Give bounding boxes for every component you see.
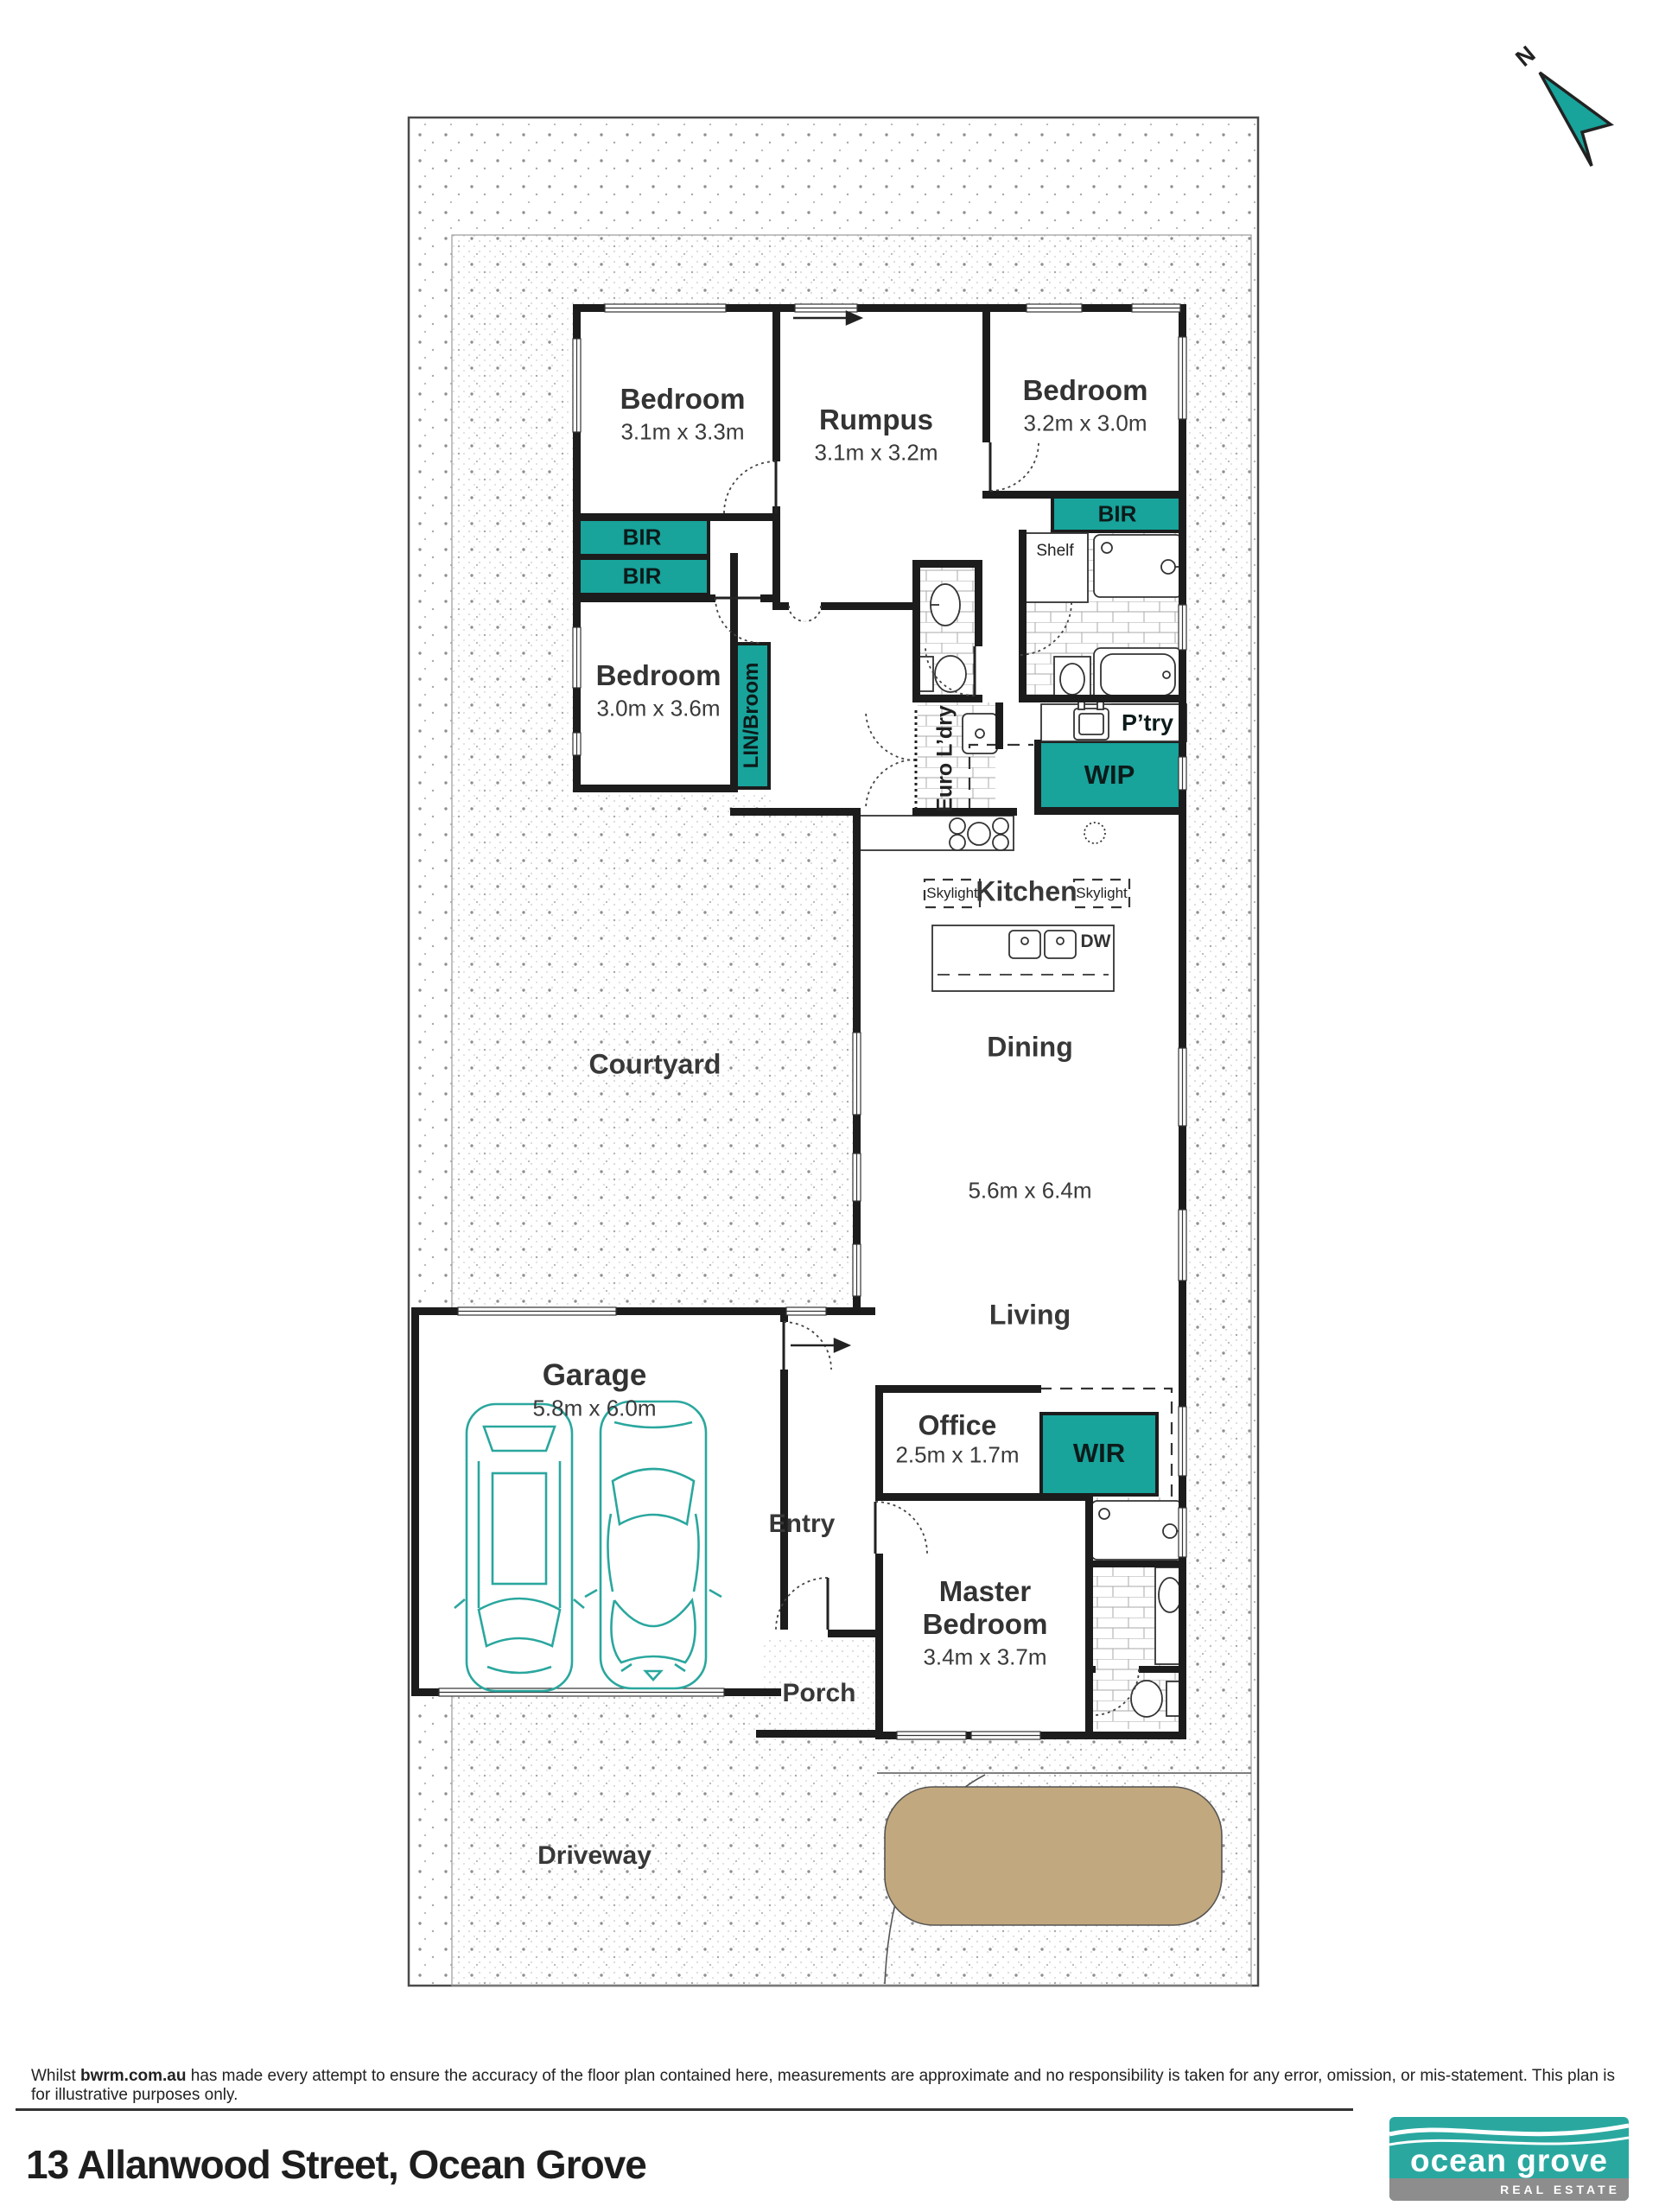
wall-segment	[975, 560, 982, 646]
master-label-line1: Master	[939, 1575, 1031, 1608]
shelf-label: Shelf	[1036, 542, 1073, 561]
north-arrow-icon	[1540, 73, 1611, 166]
open-plan-dims: 5.6m x 6.4m	[968, 1178, 1091, 1205]
wall-segment	[912, 695, 982, 702]
window	[605, 304, 726, 312]
bir2-label: BIR	[623, 563, 662, 590]
wall-segment	[821, 602, 920, 610]
office-label: Office	[918, 1410, 997, 1442]
appliance-icon	[1084, 823, 1105, 843]
footer-divider	[16, 2108, 1353, 2111]
wall-segment	[828, 1630, 877, 1637]
wall-segment	[875, 1554, 883, 1739]
agency-logo: ocean grove REAL ESTATE	[1389, 2117, 1629, 2201]
wall-segment	[573, 513, 780, 521]
kitchen-label: Kitchen	[976, 876, 1077, 908]
wall-segment	[1085, 1497, 1093, 1739]
window	[1179, 605, 1186, 650]
window	[853, 1244, 861, 1296]
garage-dims: 5.8m x 6.0m	[532, 1395, 656, 1422]
wall-segment	[912, 560, 982, 568]
wall-segment	[982, 491, 1186, 499]
office-dims: 2.5m x 1.7m	[895, 1442, 1019, 1469]
wall-segment	[756, 1730, 877, 1738]
wall-segment	[995, 702, 1003, 749]
wall-segment	[730, 808, 861, 816]
wall-segment	[1085, 1666, 1096, 1673]
wall-segment	[1139, 1666, 1186, 1673]
wall-segment	[724, 1688, 781, 1696]
wall-segment	[1034, 1493, 1093, 1501]
window	[1179, 1048, 1186, 1126]
disclaimer-site: bwrm.com.au	[80, 2067, 186, 2085]
logo-tagline: REAL ESTATE	[1500, 2183, 1620, 2196]
skylight1-label: Skylight	[926, 885, 978, 902]
bir1-label: BIR	[623, 524, 662, 551]
wip-label: WIP	[1084, 760, 1135, 791]
floorplan-drawing	[0, 0, 1659, 2212]
window	[1027, 304, 1082, 312]
wall-segment	[780, 1370, 788, 1630]
floorplan-page: N Bedroom 3.1m x 3.3m Rumpus 3.1m x 3.2m…	[0, 0, 1659, 2212]
bedroom1-dims: 3.1m x 3.3m	[620, 419, 744, 446]
window	[853, 1154, 861, 1201]
bir3-label: BIR	[1098, 501, 1137, 528]
master-label-line2: Bedroom	[923, 1608, 1048, 1641]
window	[1179, 337, 1186, 419]
wall-segment	[982, 304, 990, 442]
bedroom3-dims: 3.0m x 3.6m	[596, 696, 720, 722]
wall-segment	[730, 553, 738, 792]
cooktop-icon	[950, 818, 965, 834]
disclaimer-text: Whilst bwrm.com.au has made every attemp…	[31, 2067, 1638, 2105]
courtyard-label: Courtyard	[589, 1049, 721, 1081]
garden-island	[885, 1787, 1222, 1925]
wall-segment	[1085, 1560, 1186, 1567]
wall-segment	[1034, 807, 1186, 815]
wall-segment	[573, 785, 738, 792]
logo-tagline-bar: REAL ESTATE	[1389, 2178, 1629, 2201]
wall-segment	[411, 1307, 419, 1696]
dishwasher-label: DW	[1081, 931, 1111, 952]
rumpus-dims: 3.1m x 3.2m	[814, 440, 938, 467]
wall-segment	[912, 808, 1017, 816]
wall-segment	[853, 1115, 861, 1154]
window	[1179, 1508, 1186, 1557]
wall-segment	[875, 1385, 1041, 1393]
skylight2-label: Skylight	[1076, 885, 1128, 902]
wall-segment	[853, 816, 861, 1033]
bedroom2-label: Bedroom	[1023, 374, 1148, 407]
master-dims: 3.4m x 3.7m	[923, 1644, 1046, 1671]
window	[971, 1732, 1040, 1739]
wall-segment	[411, 1688, 439, 1696]
property-address: 13 Allanwood Street, Ocean Grove	[26, 2141, 646, 2188]
garage-label: Garage	[543, 1358, 647, 1393]
wall-segment	[616, 1307, 780, 1315]
window	[1132, 304, 1180, 312]
disclaimer-prefix: Whilst	[31, 2067, 80, 2085]
logo-name: ocean grove	[1410, 2145, 1608, 2178]
toilet-tank-icon	[919, 657, 933, 691]
window	[897, 1732, 966, 1739]
wir-label: WIR	[1073, 1438, 1125, 1469]
wall-segment	[1034, 740, 1041, 814]
wall-segment	[573, 594, 715, 602]
toilet-icon	[935, 656, 966, 692]
wall-segment	[1019, 695, 1186, 702]
dining-label: Dining	[987, 1032, 1073, 1064]
window	[786, 1307, 826, 1315]
wall-segment	[1019, 530, 1027, 702]
bedroom2-dims: 3.2m x 3.0m	[1023, 410, 1147, 437]
wall-segment	[853, 1201, 861, 1244]
porch-label: Porch	[782, 1679, 855, 1708]
window	[795, 304, 857, 312]
wc-toilet-icon	[1131, 1681, 1162, 1717]
wall-segment	[772, 304, 780, 461]
bedroom1-label: Bedroom	[620, 383, 746, 416]
window	[853, 1033, 861, 1115]
logo-top: ocean grove	[1389, 2117, 1629, 2178]
window	[573, 627, 581, 688]
window	[1179, 1210, 1186, 1281]
window	[458, 1307, 616, 1315]
window	[573, 733, 581, 755]
euro-laundry-label: Euro L’dry	[933, 705, 958, 812]
living-label: Living	[989, 1300, 1071, 1332]
pantry-label: P’try	[1122, 710, 1173, 737]
entry-label: Entry	[769, 1510, 836, 1539]
window	[573, 339, 581, 432]
rumpus-label: Rumpus	[819, 404, 933, 436]
wall-segment	[875, 1385, 883, 1497]
wall-segment	[760, 594, 780, 602]
wall-segment	[772, 602, 789, 610]
window	[439, 1688, 724, 1696]
disclaimer-rest: has made every attempt to ensure the acc…	[31, 2067, 1615, 2104]
window	[1179, 757, 1186, 790]
driveway-label: Driveway	[537, 1841, 652, 1871]
window	[1179, 1407, 1186, 1476]
bedroom3-label: Bedroom	[596, 659, 721, 692]
lin-broom-label: LIN/Broom	[740, 663, 764, 769]
wall-segment	[875, 1493, 1041, 1501]
wall-segment	[912, 560, 920, 702]
